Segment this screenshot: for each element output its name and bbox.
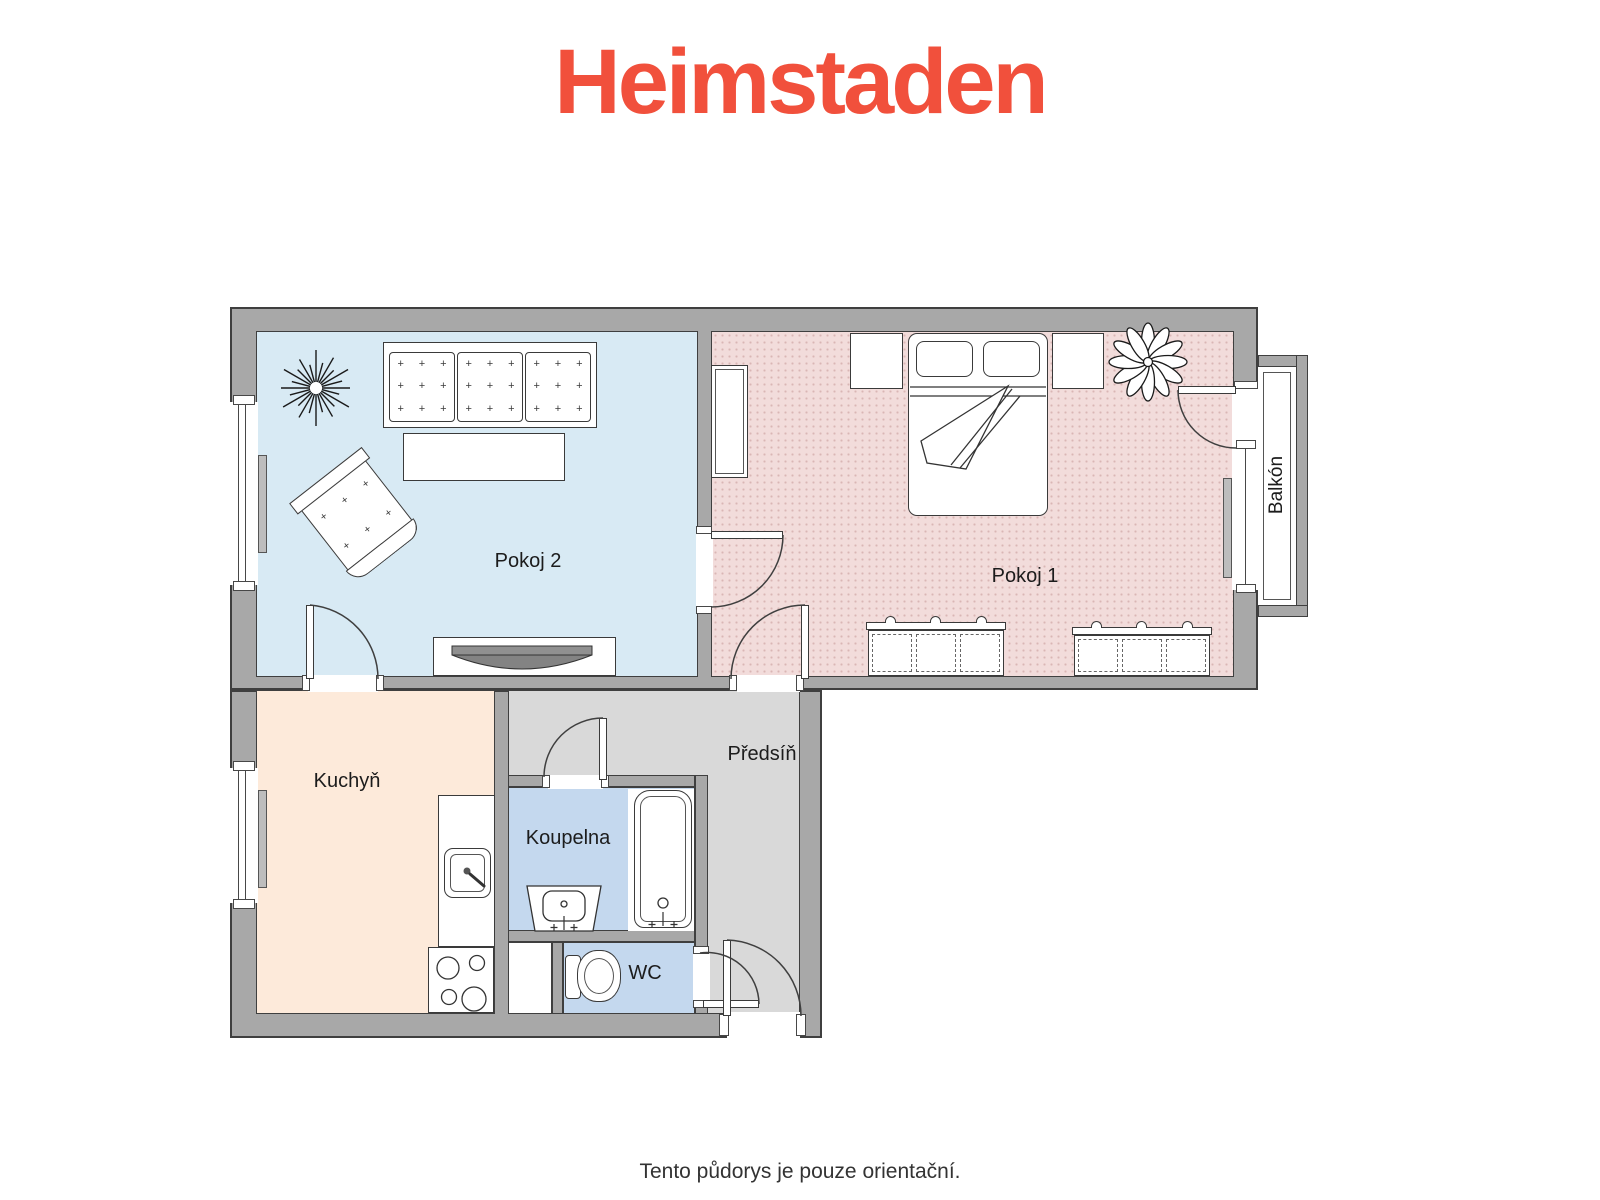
dresser-top-rail xyxy=(1072,627,1212,635)
radiator xyxy=(258,455,267,553)
pillow xyxy=(916,341,973,377)
door-jamb xyxy=(376,675,384,691)
sofa-cushion: +++++++++ xyxy=(457,352,523,422)
bathtub xyxy=(634,790,692,928)
dresser-drawer xyxy=(1078,639,1118,672)
window-pane-line xyxy=(245,768,246,903)
window-cap xyxy=(1236,440,1256,449)
door-jamb xyxy=(719,1014,729,1036)
nightstand xyxy=(1052,333,1104,389)
window-cap xyxy=(1236,584,1256,593)
door-opening-koupelna xyxy=(548,775,603,789)
footer-disclaimer: Tento půdorys je pouze orientační. xyxy=(400,1160,1200,1184)
window-kuchyn-opening xyxy=(230,768,258,903)
room-label-balkon: Balkón xyxy=(1266,425,1288,545)
room-label-pokoj2: Pokoj 2 xyxy=(448,550,608,573)
interior-wall-bath-wc xyxy=(508,930,695,942)
door-leaf-pokoj1-pokoj2 xyxy=(711,531,783,539)
dresser-drawer xyxy=(960,634,1000,672)
page: Heimstaden xyxy=(0,0,1600,1200)
room-label-kuchyn: Kuchyň xyxy=(267,770,427,793)
door-jamb xyxy=(796,1014,806,1036)
bathtub-inner xyxy=(640,796,686,922)
door-opening-pokoj2-pokoj1 xyxy=(696,533,713,607)
door-jamb xyxy=(729,675,737,691)
window-pane-line xyxy=(1245,446,1246,590)
dresser-drawer xyxy=(1122,639,1162,672)
pillow xyxy=(983,341,1040,377)
wardrobe xyxy=(711,365,748,478)
kitchen-sink-basin xyxy=(450,854,485,892)
sofa-cushion: +++++++++ xyxy=(389,352,455,422)
wardrobe-inner xyxy=(715,369,744,474)
door-leaf-balcony xyxy=(1178,386,1236,394)
door-opening-predsin-pokoj1 xyxy=(737,675,800,692)
dresser-knob xyxy=(885,616,896,623)
window-cap xyxy=(233,581,255,591)
window-pane-line xyxy=(238,402,239,585)
dresser-knob xyxy=(1136,621,1147,628)
interior-wall-niche-wc xyxy=(552,942,563,1014)
dresser xyxy=(868,630,1004,676)
dresser-knob xyxy=(976,616,987,623)
dresser-knob xyxy=(930,616,941,623)
door-jamb xyxy=(1234,381,1258,389)
stove xyxy=(428,947,494,1013)
door-jamb xyxy=(693,946,709,954)
sofa-tufts: +++++++++ xyxy=(526,353,590,421)
room-label-wc: WC xyxy=(565,962,725,985)
utility-niche-floor xyxy=(508,942,552,1014)
radiator xyxy=(258,790,267,888)
window-pane-line xyxy=(238,768,239,903)
nightstand xyxy=(850,333,903,389)
coffee-table xyxy=(403,433,565,481)
door-opening-balcony xyxy=(1232,388,1260,446)
window-pokoj2-opening xyxy=(230,402,258,585)
door-leaf-pokoj1 xyxy=(801,605,809,679)
tv-stand xyxy=(433,637,616,676)
door-leaf-koupelna xyxy=(599,718,607,780)
door-leaf-wc xyxy=(703,1000,759,1008)
door-jamb xyxy=(542,775,550,788)
dresser-knob xyxy=(1182,621,1193,628)
room-label-koupelna: Koupelna xyxy=(488,827,648,850)
window-cap xyxy=(233,395,255,405)
brand-logo: Heimstaden xyxy=(0,36,1600,128)
room-label-pokoj1: Pokoj 1 xyxy=(945,565,1105,588)
dresser-top-rail xyxy=(866,622,1006,630)
window-pane-line xyxy=(245,402,246,585)
dresser-knob xyxy=(1091,621,1102,628)
door-opening-entrance xyxy=(727,1012,800,1040)
sofa-cushion: +++++++++ xyxy=(525,352,591,422)
door-jamb xyxy=(696,606,712,614)
room-label-predsin: Předsíň xyxy=(682,743,842,766)
sofa-tufts: +++++++++ xyxy=(458,353,522,421)
balcony-wall-bottom xyxy=(1258,605,1308,617)
dresser-drawer xyxy=(872,634,912,672)
kitchen-sink xyxy=(444,848,491,898)
door-leaf-pokoj2 xyxy=(306,605,314,679)
door-jamb xyxy=(696,526,712,534)
sofa-tufts: +++++++++ xyxy=(390,353,454,421)
window-cap xyxy=(233,899,255,909)
dresser xyxy=(1074,635,1210,676)
window-cap xyxy=(233,761,255,771)
balcony-wall-right xyxy=(1296,355,1308,617)
radiator xyxy=(1223,478,1232,578)
dresser-drawer xyxy=(916,634,956,672)
dresser-drawer xyxy=(1166,639,1206,672)
door-opening-pokoj2-kuchyn xyxy=(308,675,378,692)
window-pokoj1-opening xyxy=(1232,446,1260,590)
